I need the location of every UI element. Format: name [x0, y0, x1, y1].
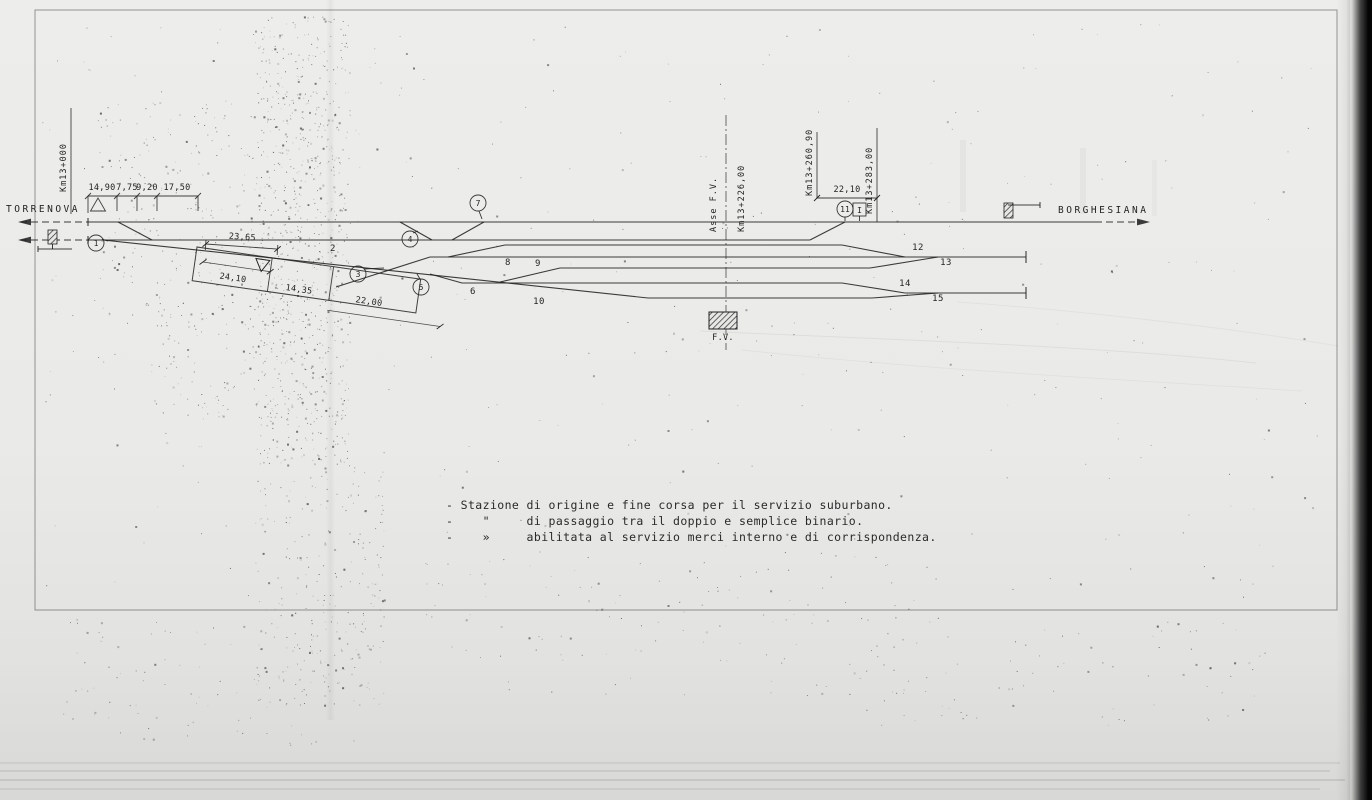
dim-9-20: 9,20	[136, 183, 158, 193]
track-lines	[20, 218, 1140, 299]
track-label-8: 8	[505, 258, 511, 268]
station-label-borghesiana: BORGHESIANA	[1058, 205, 1148, 216]
dim-17-50: 17,50	[163, 183, 190, 193]
switch-number-1: 1	[94, 239, 99, 248]
track-label-6: 6	[470, 287, 476, 297]
arrow-left-loop	[18, 237, 31, 244]
switch-number-11: 11	[840, 205, 850, 214]
dim-14-90: 14,90	[88, 183, 115, 193]
book-page-edge	[1346, 0, 1372, 800]
track-label-12: 12	[912, 243, 924, 253]
switch-number-3: 3	[356, 270, 361, 279]
station-notes: - Stazione di origine e fine corsa per i…	[446, 497, 937, 545]
track-schematic-svg: Km13+000 14,90 7,75 9,20 17,50	[0, 0, 1372, 800]
page-bottom-streak	[0, 788, 1320, 790]
scanned-track-diagram-page: Km13+000 14,90 7,75 9,20 17,50	[0, 0, 1372, 800]
note-line-2: - " di passaggio tra il doppio e semplic…	[446, 514, 863, 528]
km-260-label: Km13+260,90	[805, 129, 815, 196]
scan-ghost-lines	[700, 140, 1338, 391]
dim-22-10: 22,10	[833, 185, 860, 195]
building-hatched-icon	[709, 312, 737, 329]
track-label-15: 15	[932, 294, 944, 304]
switch-number-4: 4	[408, 235, 413, 244]
left-dimension-block	[85, 193, 201, 213]
note-line-1: - Stazione di origine e fine corsa per i…	[446, 498, 893, 512]
page-crease	[326, 0, 335, 720]
track-label-14: 14	[899, 279, 911, 289]
station-building: F.V.	[709, 312, 737, 343]
track-label-13: 13	[940, 258, 952, 268]
dim-22-00: 22,00	[355, 295, 383, 309]
axis-km-label: Km13+226,00	[737, 165, 747, 232]
right-signal	[1004, 202, 1040, 218]
station-label-torrenova: TORRENOVA	[6, 204, 80, 215]
dim-7-75: 7,75	[116, 183, 138, 193]
triangle-signal-symbol	[91, 198, 106, 211]
left-dimension-labels: 14,90 7,75 9,20 17,50	[88, 183, 190, 193]
switch-number-5: 5	[419, 283, 424, 292]
axis-title: Asse F.V.	[709, 177, 719, 232]
track-label-10: 10	[533, 297, 545, 307]
page-bottom-streak	[0, 770, 1330, 772]
platform-box: 24,10 14,35 22,00	[190, 247, 449, 330]
signal-post-icon	[48, 230, 57, 244]
track-label-9: 9	[535, 259, 541, 269]
dim-23-65: 23,65	[228, 232, 256, 244]
nabla-signal-symbol	[254, 259, 270, 273]
arrow-right-main	[1137, 219, 1150, 226]
yard-lead-diagonal	[103, 240, 648, 298]
km-origin-label: Km13+000	[59, 143, 69, 192]
scan-speckle-noise	[42, 16, 1317, 745]
page-bottom-streak	[0, 762, 1340, 764]
arrow-left-main	[18, 219, 31, 226]
left-signal	[38, 230, 72, 252]
switch-number-7: 7	[476, 199, 481, 208]
dim-24-10: 24,10	[219, 272, 247, 286]
building-label: F.V.	[712, 333, 734, 343]
boxed-signal-label: I	[857, 206, 862, 215]
km-283-label: Km13+283,00	[865, 147, 875, 214]
note-line-3: - » abilitata al servizio merci interno …	[446, 530, 937, 544]
page-bottom-streak	[0, 779, 1345, 781]
km-origin-marker: Km13+000	[59, 108, 71, 214]
